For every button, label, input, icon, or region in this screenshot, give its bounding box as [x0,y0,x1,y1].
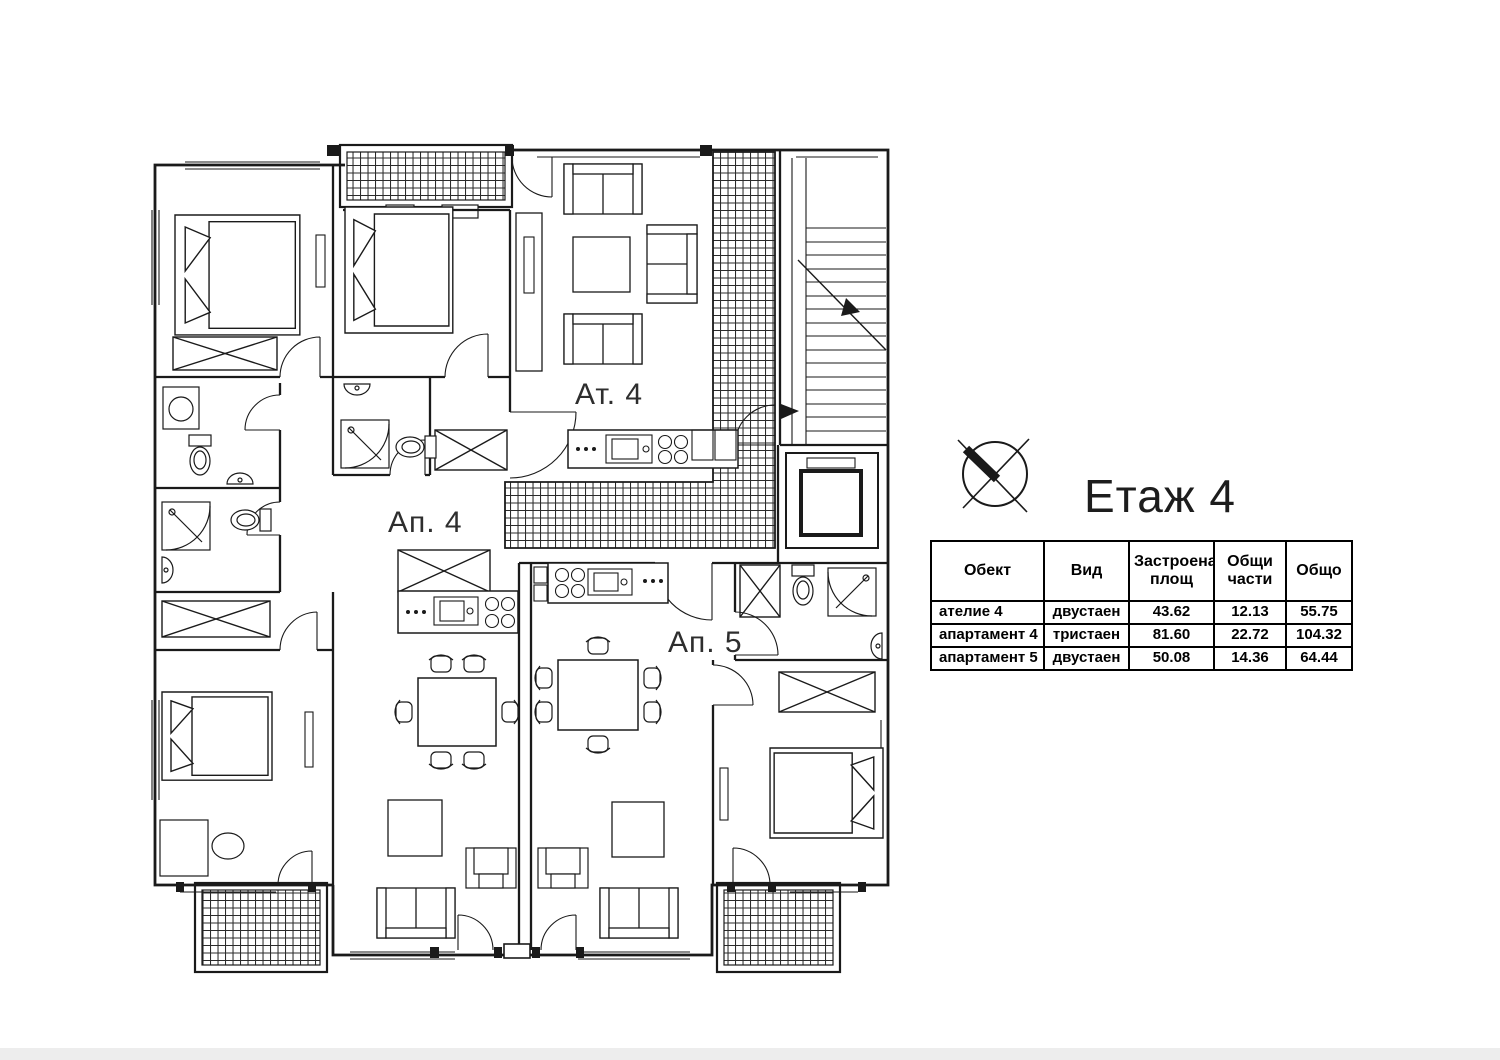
table-row: ателие 4 двустаен 43.62 12.13 55.75 [931,601,1352,624]
scan-edge-artifact [0,1048,1500,1060]
label-apartment-4: Ап. 4 [388,506,463,539]
chair [462,655,486,672]
table-cell: 55.75 [1286,601,1352,624]
col-built-area: Застроена площ [1129,541,1214,601]
table-cell: 22.72 [1214,624,1286,647]
sofa [377,888,455,938]
table-cell: 64.44 [1286,647,1352,670]
chair [535,666,552,690]
chair [644,700,661,724]
label-apartment-5: Ап. 5 [668,626,743,659]
toilet [231,509,271,531]
kitchen-atelier4 [568,430,738,468]
bed [770,748,883,838]
page-title: Етаж 4 [1084,469,1236,523]
table-cell: тристаен [1044,624,1129,647]
chair [586,637,610,654]
elevator [786,453,878,548]
balcony-bottom-right [717,883,840,972]
col-type: Вид [1044,541,1129,601]
page-canvas: Ат. 4 Ап. 4 Ап. 5 Етаж 4 Обект Вид Застр… [0,0,1500,1060]
dining-table [558,660,638,730]
floor-plan-drawing: Ат. 4 Ап. 4 Ап. 5 [0,0,1500,1060]
kitchen-apartment4 [398,591,518,633]
table-cell: ателие 4 [931,601,1044,624]
chair [462,752,486,769]
shower [341,420,389,468]
toilet [189,435,211,475]
wardrobe-box [173,337,277,370]
staircase [781,158,886,445]
balcony-bottom-left [195,883,327,972]
wardrobe-box [398,550,490,592]
table-cell: 104.32 [1286,624,1352,647]
col-common-parts: Общи части [1214,541,1286,601]
chair [395,700,412,724]
table-cell: двустаен [1044,647,1129,670]
chair [502,700,519,724]
table-cell: 43.62 [1129,601,1214,624]
desk [160,820,208,876]
table-cell: апартамент 5 [931,647,1044,670]
table-row: апартамент 5 двустаен 50.08 14.36 64.44 [931,647,1352,670]
tv [316,235,325,287]
north-arrow-icon [958,439,1029,512]
chair [429,655,453,672]
chair [644,666,661,690]
sink [162,557,173,583]
table-header-row: Обект Вид Застроена площ Общи части Общо [931,541,1352,601]
sink [871,633,882,659]
bed [162,692,272,780]
wardrobe-box [162,601,270,637]
coffee-table [388,800,442,856]
table-cell: апартамент 4 [931,624,1044,647]
wardrobe-box [779,672,875,712]
label-atelier-4: Ат. 4 [575,378,643,411]
chair [586,736,610,753]
table-cell: 81.60 [1129,624,1214,647]
stairs-direction-arrow-icon [841,298,860,316]
sofa [647,225,697,303]
bed [175,215,300,335]
col-object: Обект [931,541,1044,601]
table-cell: двустаен [1044,601,1129,624]
shower [828,568,876,616]
tv [720,768,728,820]
shower [162,502,210,550]
sofa [564,164,642,214]
toilet [396,436,436,458]
sofa [564,314,642,364]
tv [305,712,313,767]
dining-table [418,678,496,746]
kitchen-apartment5 [534,563,668,603]
col-total: Общо [1286,541,1352,601]
chair [535,700,552,724]
sink [344,384,370,395]
washing-machine [163,387,199,429]
coffee-table [573,237,630,292]
table-row: апартамент 4 тристаен 81.60 22.72 104.32 [931,624,1352,647]
armchair [538,848,588,888]
sofa [600,888,678,938]
desk-chair [212,833,244,859]
bed [345,207,453,333]
shaft-box [740,565,780,617]
toilet [792,565,814,605]
wardrobe-box [435,430,507,470]
coffee-table [612,802,664,857]
stairs-entry-arrow-icon [781,404,799,419]
table-cell: 50.08 [1129,647,1214,670]
table-cell: 14.36 [1214,647,1286,670]
chair [429,752,453,769]
table-cell: 12.13 [1214,601,1286,624]
sink [227,473,253,484]
armchair [466,848,516,888]
area-table: Обект Вид Застроена площ Общи части Общо… [930,540,1353,671]
